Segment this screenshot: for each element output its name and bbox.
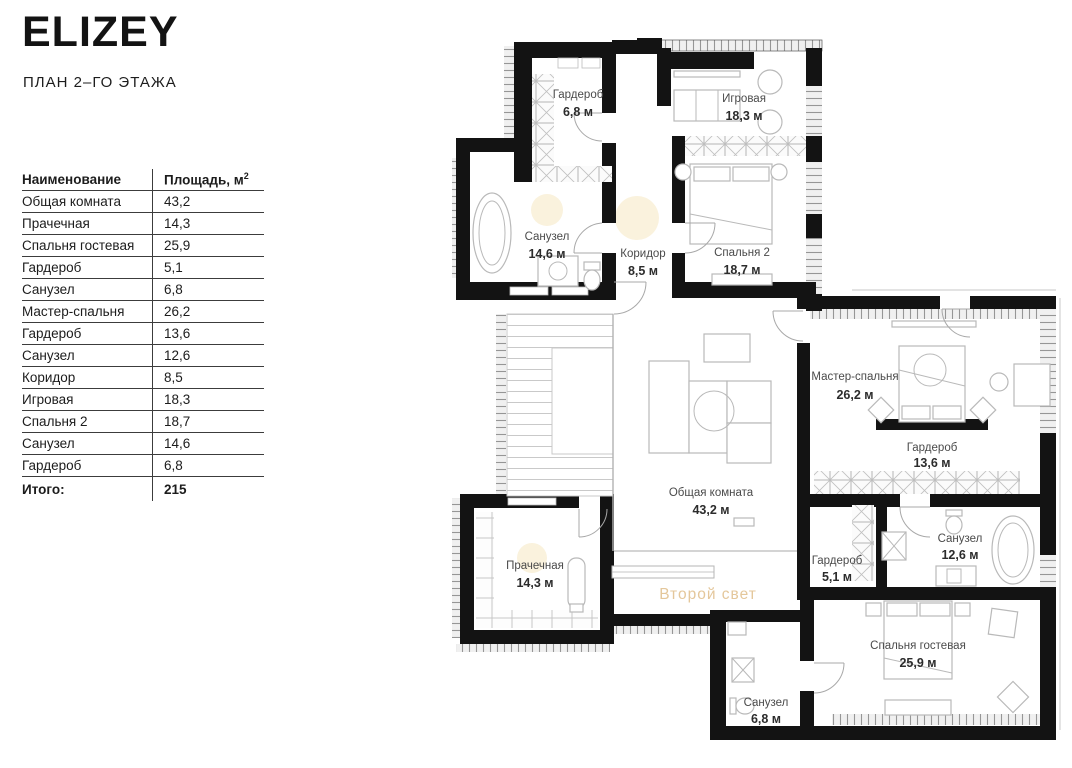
room-area-cell: 5,1 [153, 257, 265, 279]
room-name-cell: Санузел [22, 279, 153, 301]
room-label: Общая комната [669, 487, 754, 499]
page: ELIZEY ПЛАН 2–ГО ЭТАЖА Наименование Площ… [0, 0, 1072, 768]
room-area: 14,3 м [516, 576, 553, 590]
table-row-12: Гардероб6,8 [22, 455, 264, 477]
room-label: Санузел [744, 697, 789, 709]
room-area: 43,2 м [692, 503, 729, 517]
room-name-cell: Мастер-спальня [22, 301, 153, 323]
room-area-cell: 43,2 [153, 191, 265, 213]
table-row-0: Общая комната43,2 [22, 191, 264, 213]
room-area: 14,6 м [528, 247, 565, 261]
room-label: Спальня 2 [714, 247, 770, 259]
rooms-table: Наименование Площадь, м2 Общая комната43… [22, 169, 264, 501]
table-row-6: Гардероб13,6 [22, 323, 264, 345]
room-area-cell: 13,6 [153, 323, 265, 345]
col-header-area: Площадь, м2 [153, 169, 265, 191]
room-label: Санузел [938, 533, 983, 545]
room-label: Санузел [525, 231, 570, 243]
room-label: Гардероб [907, 442, 958, 454]
room-area: 6,8 м [563, 105, 593, 119]
room-area: 25,9 м [899, 656, 936, 670]
room-area: 5,1 м [822, 570, 852, 584]
floor-plan: Гардероб 6,8 м Игровая 18,3 м Санузел 14… [452, 18, 1072, 768]
room-name-cell: Гардероб [22, 455, 153, 477]
room-area: 6,8 м [751, 712, 781, 726]
room-label: Прачечная [506, 560, 564, 572]
room-label: Гардероб [553, 89, 604, 101]
table-row-1: Прачечная14,3 [22, 213, 264, 235]
table-row-10: Спальня 218,7 [22, 411, 264, 433]
room-area: 13,6 м [913, 456, 950, 470]
table-row-9: Игровая18,3 [22, 389, 264, 411]
room-label: Спальня гостевая [870, 640, 966, 652]
table-header-row: Наименование Площадь, м2 [22, 169, 264, 191]
logo: ELIZEY [22, 8, 179, 57]
room-area: 8,5 м [628, 264, 658, 278]
room-area-cell: 25,9 [153, 235, 265, 257]
second-light-opening [612, 551, 797, 578]
room-area-cell: 14,6 [153, 433, 265, 455]
room-name-cell: Санузел [22, 345, 153, 367]
total-label: Итого: [22, 477, 153, 502]
room-area: 26,2 м [836, 388, 873, 402]
room-name-cell: Спальня гостевая [22, 235, 153, 257]
room-name-cell: Игровая [22, 389, 153, 411]
room-area: 12,6 м [941, 548, 978, 562]
room-area-cell: 12,6 [153, 345, 265, 367]
table-row-7: Санузел12,6 [22, 345, 264, 367]
room-label: Коридор [620, 248, 665, 260]
room-area-cell: 26,2 [153, 301, 265, 323]
room-name-cell: Гардероб [22, 257, 153, 279]
room-name-cell: Санузел [22, 433, 153, 455]
second-light-label: Второй свет [659, 586, 757, 603]
room-name-cell: Прачечная [22, 213, 153, 235]
table-row-8: Коридор8,5 [22, 367, 264, 389]
room-area-cell: 18,7 [153, 411, 265, 433]
room-name-cell: Спальня 2 [22, 411, 153, 433]
room-area: 18,7 м [723, 263, 760, 277]
table-row-3: Гардероб5,1 [22, 257, 264, 279]
staircase [507, 314, 613, 551]
table-total-row: Итого: 215 [22, 477, 264, 502]
room-label: Гардероб [812, 555, 863, 567]
total-value: 215 [153, 477, 265, 502]
room-area-cell: 18,3 [153, 389, 265, 411]
table-row-11: Санузел14,6 [22, 433, 264, 455]
room-name-cell: Коридор [22, 367, 153, 389]
room-label: Игровая [722, 93, 766, 105]
table-row-5: Мастер-спальня26,2 [22, 301, 264, 323]
room-area-cell: 14,3 [153, 213, 265, 235]
room-area: 18,3 м [725, 109, 762, 123]
floor-plan-drawing: Гардероб 6,8 м Игровая 18,3 м Санузел 14… [452, 18, 1072, 768]
room-name-cell: Общая комната [22, 191, 153, 213]
room-area-cell: 6,8 [153, 455, 265, 477]
col-header-name: Наименование [22, 169, 153, 191]
room-area-cell: 8,5 [153, 367, 265, 389]
room-area-cell: 6,8 [153, 279, 265, 301]
page-title: ПЛАН 2–ГО ЭТАЖА [23, 74, 177, 91]
table-row-2: Спальня гостевая25,9 [22, 235, 264, 257]
room-name-cell: Гардероб [22, 323, 153, 345]
room-label: Мастер-спальня [811, 371, 898, 383]
table-row-4: Санузел6,8 [22, 279, 264, 301]
